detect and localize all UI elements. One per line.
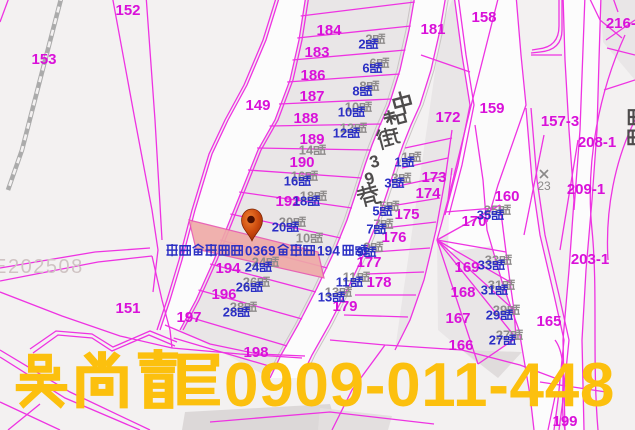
svg-text:194: 194 [215,260,241,277]
svg-text:194: 194 [317,244,340,259]
svg-text:35: 35 [477,208,491,223]
svg-text:26: 26 [236,280,250,295]
svg-text:0369: 0369 [245,244,276,259]
svg-text:7: 7 [373,217,380,232]
svg-text:29: 29 [486,308,500,323]
svg-text:1: 1 [394,155,401,170]
svg-text:10: 10 [338,105,352,120]
svg-text:20: 20 [272,220,286,235]
svg-text:179: 179 [332,298,357,315]
svg-text:159: 159 [479,100,504,117]
svg-text:173: 173 [421,169,446,186]
svg-text:8: 8 [352,84,359,99]
svg-text:18: 18 [293,194,307,209]
svg-text:174: 174 [415,185,441,202]
svg-text:203-1: 203-1 [571,251,609,268]
svg-text:184: 184 [316,22,342,39]
svg-text:27: 27 [489,333,503,348]
svg-text:165: 165 [536,313,561,330]
svg-text:0909-011-448: 0909-011-448 [224,351,615,420]
svg-text:197: 197 [176,309,201,326]
svg-text:181: 181 [420,21,445,38]
svg-text:158: 158 [471,9,496,26]
svg-text:6: 6 [362,61,369,76]
svg-text:153: 153 [31,51,56,68]
svg-text:5: 5 [379,199,386,214]
svg-text:6: 6 [369,56,376,71]
svg-text:7: 7 [366,222,373,237]
svg-text:3: 3 [391,171,398,186]
svg-text:10: 10 [296,231,310,246]
svg-text:186: 186 [300,67,325,84]
svg-text:188: 188 [293,110,318,127]
svg-text:28: 28 [223,305,237,320]
svg-text:151: 151 [115,300,140,317]
svg-text:33: 33 [478,258,492,273]
svg-text:16: 16 [284,174,298,189]
svg-text:168: 168 [450,284,475,301]
svg-text:208-1: 208-1 [578,134,616,151]
svg-text:12: 12 [333,126,347,141]
svg-text:183: 183 [304,44,329,61]
svg-text:187: 187 [299,88,324,105]
svg-text:13: 13 [318,290,332,305]
svg-text:167: 167 [445,310,470,327]
svg-text:2: 2 [358,37,365,52]
svg-text:169: 169 [454,259,479,276]
svg-text:2: 2 [365,32,372,47]
svg-text:14: 14 [299,143,314,158]
svg-text:24: 24 [245,260,260,275]
svg-text:23: 23 [537,179,551,193]
svg-text:E: E [0,256,6,278]
svg-text:3: 3 [384,176,391,191]
svg-text:160: 160 [494,188,519,205]
svg-text:1: 1 [401,150,408,165]
svg-text:8: 8 [359,79,366,94]
svg-text:209-1: 209-1 [567,181,605,198]
svg-text:157-3: 157-3 [541,113,579,130]
svg-text:216-1: 216-1 [606,15,635,32]
svg-text:202508: 202508 [8,256,84,278]
svg-text:178: 178 [366,274,391,291]
svg-text:31: 31 [481,283,495,298]
svg-text:149: 149 [245,97,270,114]
svg-text:152: 152 [115,2,140,19]
svg-text:172: 172 [435,109,460,126]
